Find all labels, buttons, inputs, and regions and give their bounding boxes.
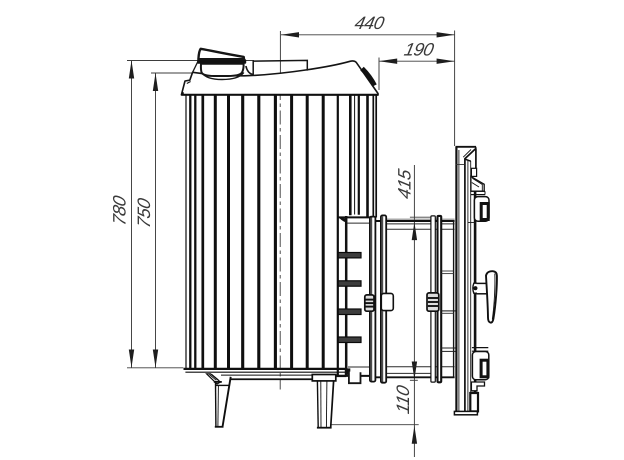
svg-text:750: 750 [134, 197, 154, 230]
svg-text:780: 780 [110, 194, 130, 227]
svg-text:190: 190 [402, 40, 435, 60]
svg-text:415: 415 [395, 167, 415, 201]
svg-text:110: 110 [393, 384, 413, 416]
svg-text:440: 440 [353, 13, 386, 33]
